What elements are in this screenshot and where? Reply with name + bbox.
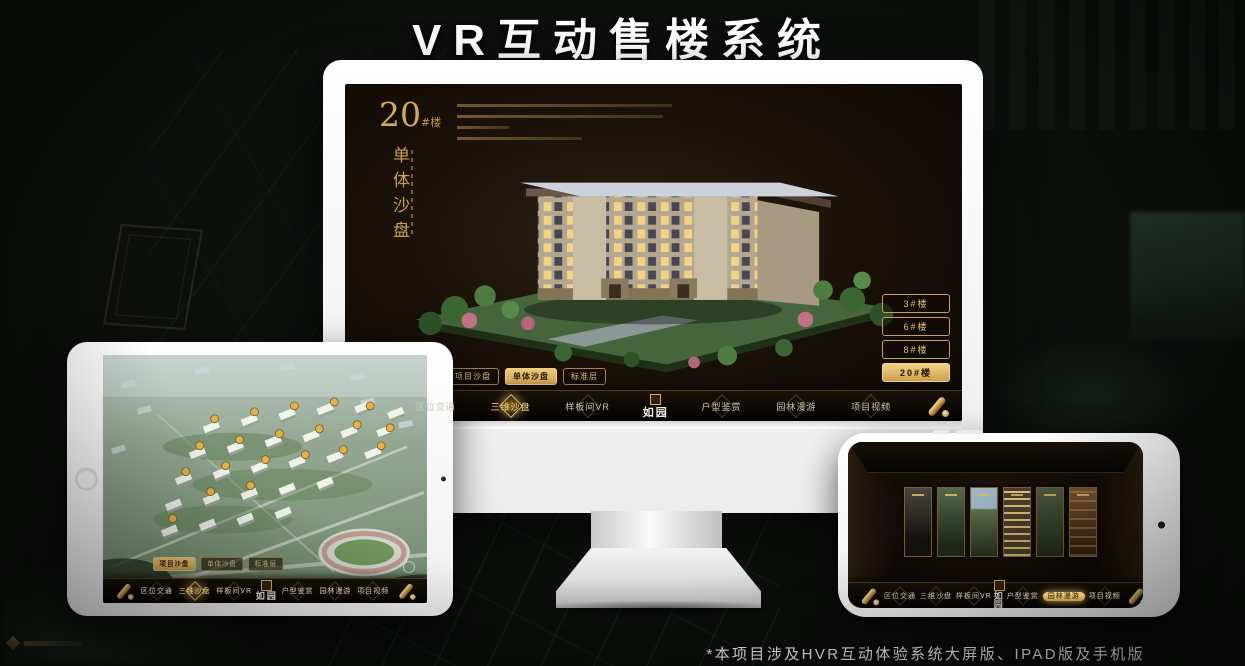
nav-item-garden-tour[interactable]: 园林漫游 (317, 586, 353, 596)
brand-logo: 如园 (256, 580, 278, 602)
diamond-icon (6, 636, 20, 650)
nav-item-location[interactable]: 区位交通 (414, 400, 458, 413)
nav-item-garden-tour[interactable]: 园林漫游 (1041, 591, 1087, 601)
monitor-shadow (520, 600, 800, 618)
bg-landscape-photo (1130, 212, 1245, 340)
phone-device: 区位交通 三维沙盘 样板间VR 如园 户型鉴赏 园林漫游 项目视频 (838, 433, 1180, 617)
volume-button[interactable] (956, 430, 982, 434)
tab-standard-floor[interactable]: 标准层 (248, 557, 283, 571)
scroll-icon[interactable] (1125, 584, 1143, 606)
nav-item-3d-sandbox[interactable]: 三维沙盘 (177, 586, 213, 596)
nav-item-location[interactable]: 区位交通 (882, 591, 918, 601)
compass-icon (403, 561, 415, 573)
tablet-mode-tabs: 项目沙盘 单体沙盘 标准层 (153, 557, 283, 571)
gallery-card-interior[interactable] (904, 487, 932, 557)
seal-icon (261, 580, 272, 591)
scroll-icon[interactable] (114, 581, 135, 602)
tab-project-sandbox[interactable]: 项目沙盘 (447, 368, 499, 385)
floor-button-8[interactable]: 8#楼 (882, 340, 950, 359)
building-heading: 20#楼 (379, 98, 441, 131)
nav-item-project-video[interactable]: 项目视频 (355, 586, 391, 596)
nav-item-garden-tour[interactable]: 园林漫游 (774, 400, 818, 413)
watermark-logo (8, 630, 104, 656)
gallery-card-building[interactable] (1003, 487, 1031, 557)
floor-button-20[interactable]: 20#楼 (882, 363, 950, 382)
scene-gallery (904, 487, 1097, 557)
nav-item-showroom-vr[interactable]: 样板间VR (954, 591, 994, 601)
phone-screen: 区位交通 三维沙盘 样板间VR 如园 户型鉴赏 园林漫游 项目视频 (848, 442, 1143, 608)
gate-silhouette (848, 442, 1143, 473)
floor-button-3[interactable]: 3#楼 (882, 294, 950, 313)
gallery-card-landscape[interactable] (1036, 487, 1064, 557)
monitor-stand-base (556, 548, 761, 608)
floor-button-6[interactable]: 6#楼 (882, 317, 950, 336)
watermark-text-bar (24, 641, 82, 646)
home-button[interactable] (75, 468, 98, 491)
nav-item-floorplans[interactable]: 户型鉴赏 (1005, 591, 1041, 601)
tablet-screen: 项目沙盘 单体沙盘 标准层 区位交通 三维沙盘 样板间VR 如园 户型鉴赏 园林… (103, 355, 427, 603)
tab-project-sandbox[interactable]: 项目沙盘 (153, 557, 196, 571)
bg-picture-frame (103, 224, 203, 330)
promo-canvas: VR互动售楼系统 20#楼 单体沙盘 (0, 0, 1245, 666)
tab-single-sandbox[interactable]: 单体沙盘 (505, 368, 557, 385)
nav-item-floorplans[interactable]: 户型鉴赏 (280, 586, 316, 596)
nav-item-3d-sandbox[interactable]: 三维沙盘 (489, 400, 533, 413)
mode-tabs: 项目沙盘 单体沙盘 标准层 (447, 368, 606, 385)
gallery-card-showroom[interactable] (1069, 487, 1097, 557)
volume-button[interactable] (933, 430, 949, 434)
nav-item-showroom-vr[interactable]: 样板间VR (214, 586, 254, 596)
gallery-card-courtyard[interactable] (937, 487, 965, 557)
page-title: VR互动售楼系统 (0, 4, 1245, 68)
scroll-icon[interactable] (396, 581, 417, 602)
nav-item-location[interactable]: 区位交通 (139, 586, 175, 596)
tab-single-sandbox[interactable]: 单体沙盘 (201, 557, 244, 571)
tab-standard-floor[interactable]: 标准层 (563, 368, 606, 385)
brand-logo: 如园 (994, 580, 1005, 608)
building-3d-model[interactable] (401, 130, 909, 378)
building-number-suffix: #楼 (421, 116, 441, 129)
brand-logo: 如园 (643, 394, 669, 418)
camera-dot (1158, 522, 1165, 529)
scroll-icon[interactable] (924, 393, 950, 419)
nav-item-showroom-vr[interactable]: 样板间VR (563, 400, 612, 413)
gallery-card-garden[interactable] (970, 487, 998, 557)
camera-dot (441, 477, 446, 482)
nav-item-floorplans[interactable]: 户型鉴赏 (700, 400, 744, 413)
seal-icon (650, 394, 661, 405)
scroll-icon[interactable] (858, 584, 880, 606)
nav-item-project-video[interactable]: 项目视频 (1087, 591, 1123, 601)
nav-item-project-video[interactable]: 项目视频 (849, 400, 893, 413)
phone-nav-bar: 区位交通 三维沙盘 样板间VR 如园 户型鉴赏 园林漫游 项目视频 (848, 582, 1143, 608)
footnote: *本项目涉及HVR互动体验系统大屏版、IPAD版及手机版 (706, 643, 1145, 664)
nav-item-3d-sandbox[interactable]: 三维沙盘 (918, 591, 954, 601)
tablet-device: 项目沙盘 单体沙盘 标准层 区位交通 三维沙盘 样板间VR 如园 户型鉴赏 园林… (67, 342, 453, 616)
floor-selector: 3#楼 6#楼 8#楼 20#楼 (882, 294, 950, 382)
building-number: 20 (379, 95, 421, 134)
tablet-nav-bar: 区位交通 三维沙盘 样板间VR 如园 户型鉴赏 园林漫游 项目视频 (103, 578, 427, 603)
seal-icon (994, 580, 1005, 591)
